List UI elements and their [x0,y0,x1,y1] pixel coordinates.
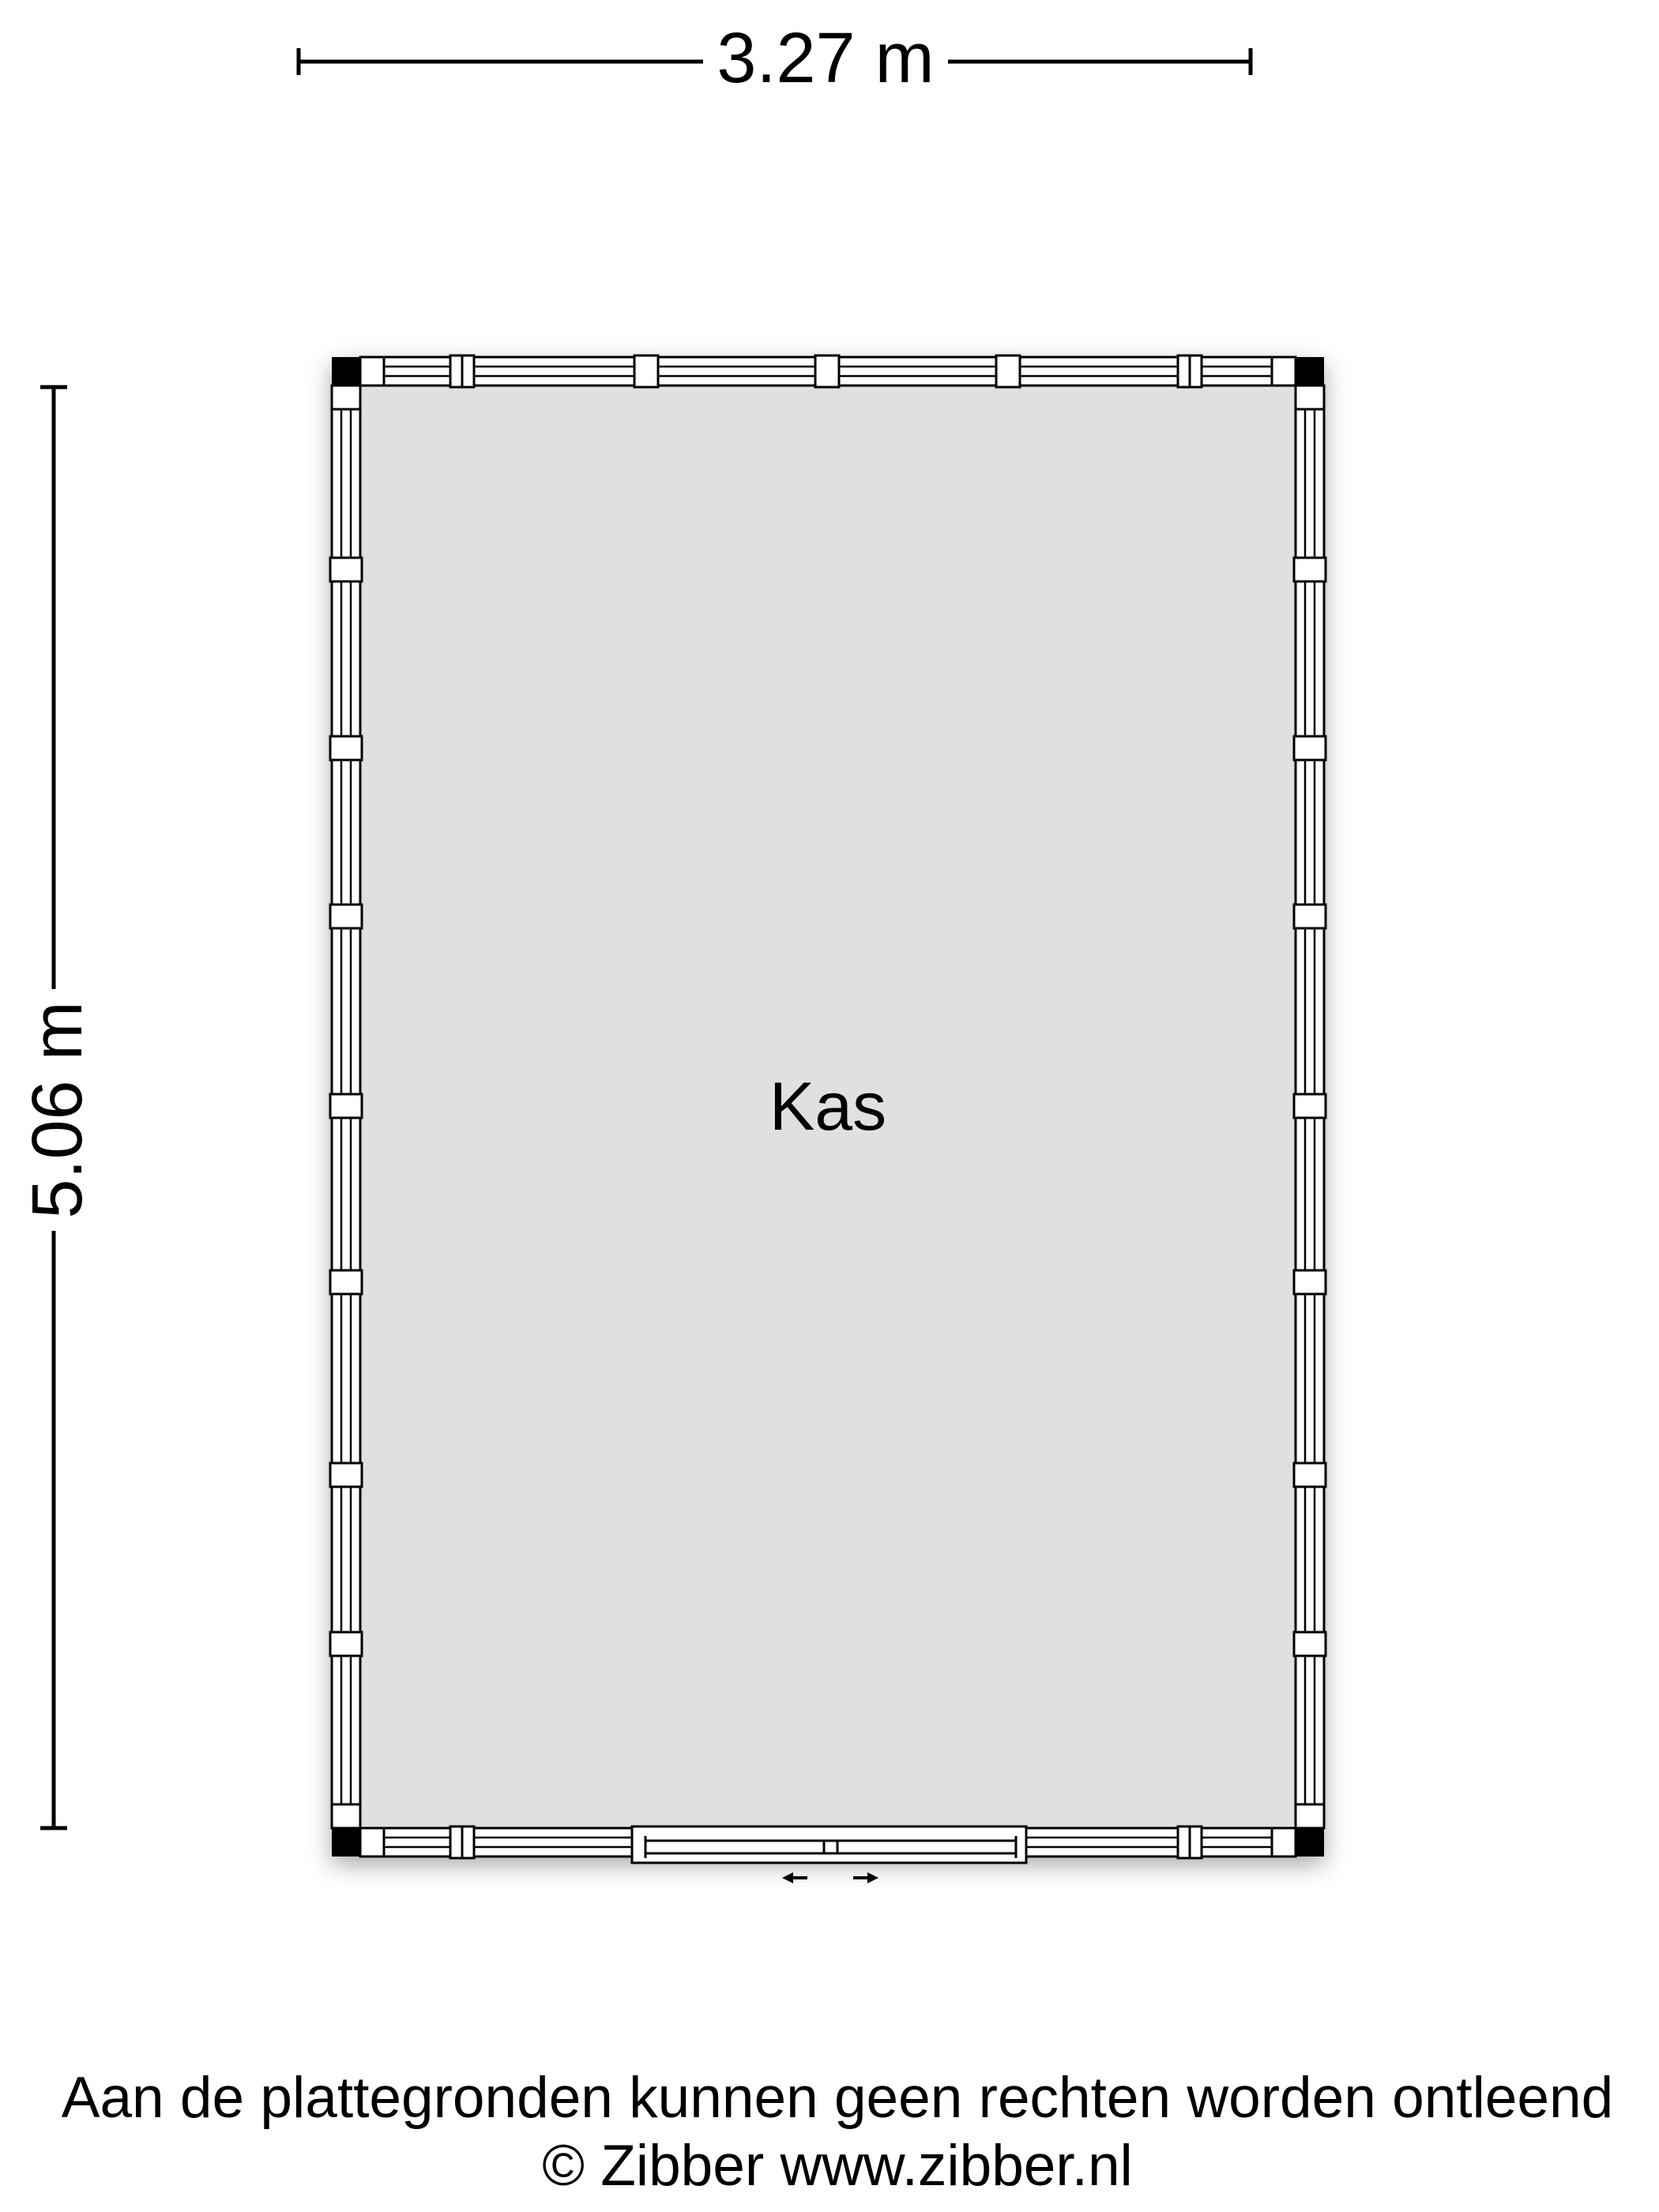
wall-mullion [330,1463,362,1487]
wall-mullion [360,357,384,386]
slide-arrow-left-icon [782,1872,807,1883]
wall-mullion [332,386,360,409]
wall-mullion [1294,558,1326,581]
wall-mullion [996,355,1020,387]
wall-mullion [634,355,658,387]
door-panel [645,1841,1016,1853]
footer-disclaimer: Aan de plattegronden kunnen geen rechten… [62,2066,1613,2130]
wall-mullion [1296,386,1324,409]
wall-mullion [1294,1270,1326,1294]
wall-mullion [815,355,839,387]
sliding-door [632,1826,1026,1883]
wall-mullion [332,1804,360,1828]
wall-mullion [330,1094,362,1118]
wall-mullion [330,1270,362,1294]
wall-mullion [330,905,362,928]
wall-mullion [1272,1828,1296,1856]
wall-mullion [1294,736,1326,760]
wall-mullion [330,736,362,760]
wall-mullion [1272,357,1296,386]
dimension-width-label: 3.27 m [717,19,934,98]
corner-post [1296,357,1324,386]
room-label: Kas [769,1069,886,1145]
dimension-width: 3.27 m [299,19,1251,98]
slide-arrow-right-icon [853,1872,878,1883]
dimension-height-label: 5.06 m [18,1001,97,1218]
corner-post [332,357,360,386]
wall-mullion [1294,1094,1326,1118]
footer-copyright: © Zibber www.zibber.nl [542,2134,1133,2198]
floorplan-canvas: Kas 3.27 m 5.06 m Aan de plattegronden k… [0,0,1659,2212]
wall-mullion [330,1632,362,1656]
wall-mullion [1294,905,1326,928]
corner-post [332,1828,360,1856]
wall-mullion [1294,1632,1326,1656]
wall-mullion [360,1828,384,1856]
dimension-height: 5.06 m [18,387,97,1828]
corner-post [1296,1828,1324,1856]
wall-mullion [1294,1463,1326,1487]
wall-mullion [330,558,362,581]
wall-mullion [1296,1804,1324,1828]
